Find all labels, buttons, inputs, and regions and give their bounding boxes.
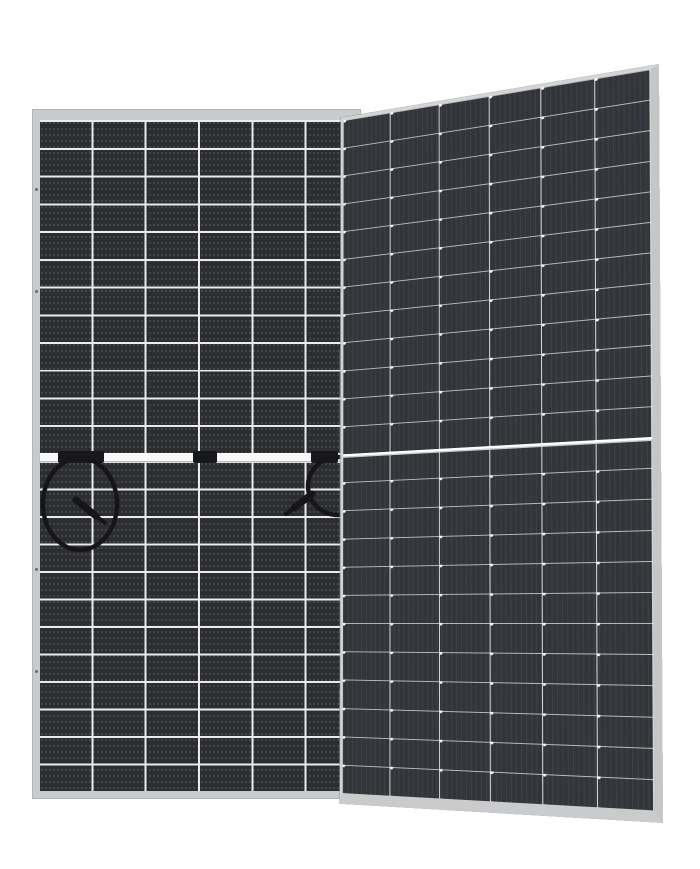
scene [0,0,700,869]
frame-mount-hole [35,670,38,673]
panel-mid-divider [343,437,652,458]
front-panel-cells [343,69,654,810]
frame-mount-hole [35,188,38,191]
front-solar-panel [340,65,662,822]
junction-box [311,451,338,463]
junction-box [193,451,217,463]
junction-band [40,453,360,461]
rear-solar-panel [33,110,360,798]
rear-panel-cells-bottom [40,461,360,791]
rear-panel-cells-top [40,120,360,453]
frame-mount-hole [35,290,38,293]
frame-mount-hole [35,568,38,571]
junction-box [58,451,104,463]
